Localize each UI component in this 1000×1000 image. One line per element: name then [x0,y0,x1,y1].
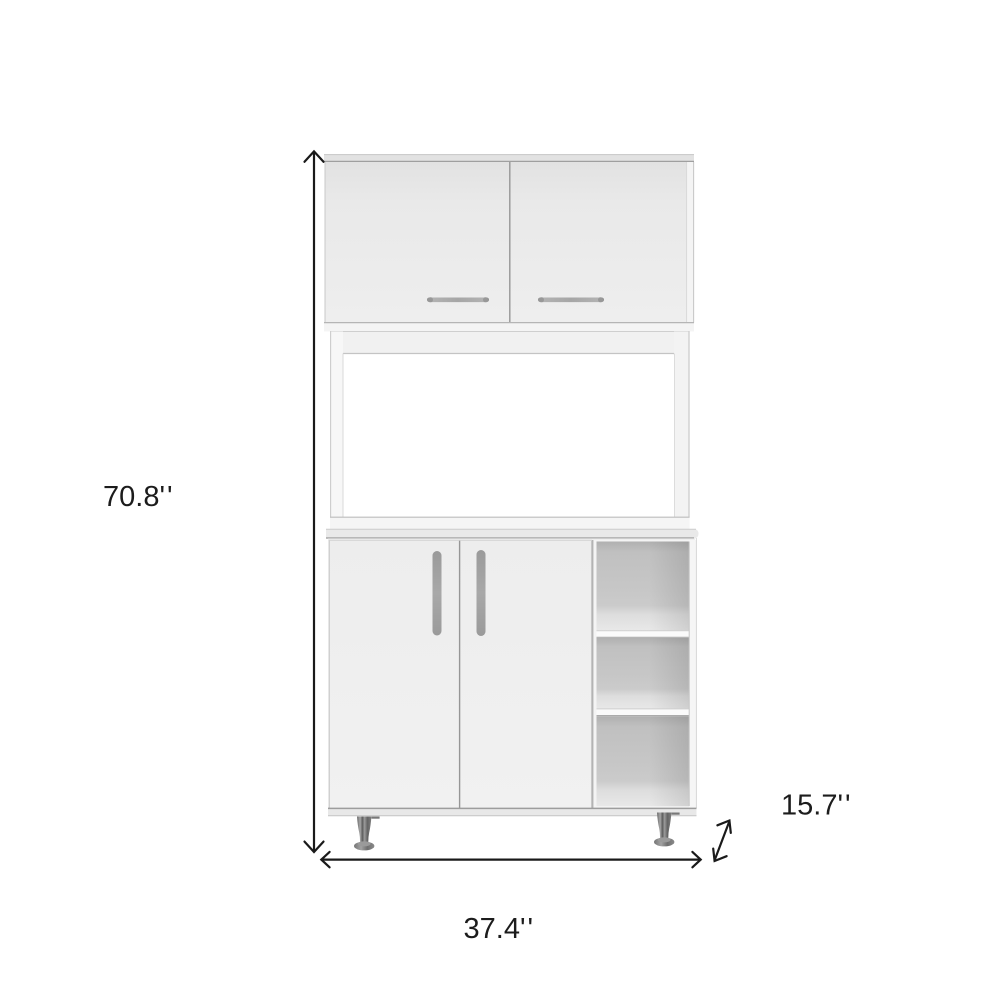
svg-text:37.4'': 37.4'' [464,913,534,945]
svg-text:15.7'': 15.7'' [781,790,851,822]
svg-text:70.8'': 70.8'' [103,481,173,513]
